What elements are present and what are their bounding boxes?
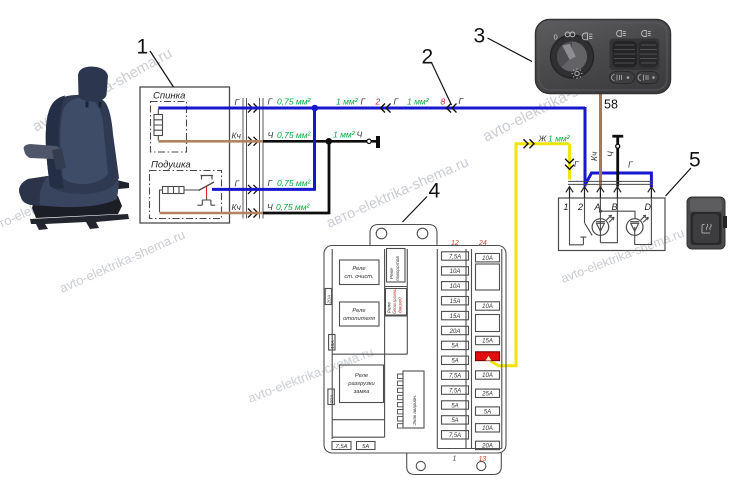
- svg-text:15А: 15А: [450, 299, 461, 305]
- svg-text:0,75 мм²: 0,75 мм²: [276, 202, 311, 212]
- svg-text:Кч: Кч: [589, 151, 599, 161]
- svg-text:Знак аварийн.: Знак аварийн.: [411, 395, 417, 425]
- svg-text:5А: 5А: [451, 359, 458, 365]
- svg-text:15А: 15А: [330, 340, 336, 349]
- svg-text:15А: 15А: [450, 314, 461, 320]
- svg-text:5А: 5А: [362, 444, 369, 450]
- svg-text:Ч: Ч: [268, 130, 274, 140]
- svg-text:0: 0: [554, 33, 558, 42]
- svg-text:0,75 мм²: 0,75 мм²: [277, 130, 312, 140]
- svg-text:10А: 10А: [482, 426, 493, 432]
- svg-text:Ч: Ч: [267, 202, 273, 212]
- svg-text:1 мм²: 1 мм²: [548, 133, 571, 143]
- svg-text:24: 24: [478, 240, 487, 247]
- svg-text:10А: 10А: [450, 284, 461, 290]
- svg-text:Реле: Реле: [355, 373, 369, 379]
- svg-text:10А: 10А: [482, 304, 493, 310]
- svg-text:10А: 10А: [329, 395, 335, 404]
- svg-text:Подушка: Подушка: [151, 160, 191, 171]
- svg-text:8: 8: [441, 97, 446, 107]
- svg-text:25А: 25А: [481, 392, 493, 398]
- svg-text:7,5А: 7,5А: [449, 374, 461, 380]
- svg-text:Реле: Реле: [389, 268, 395, 279]
- svg-text:20А: 20А: [481, 444, 493, 450]
- svg-text:ст. очист.: ст. очист.: [344, 274, 373, 280]
- svg-text:1 мм²: 1 мм²: [336, 97, 359, 107]
- svg-text:3: 3: [474, 25, 486, 48]
- svg-text:замка: замка: [353, 389, 371, 395]
- svg-text:Спинка: Спинка: [153, 91, 185, 102]
- svg-text:Реле: Реле: [352, 308, 366, 314]
- svg-text:2: 2: [577, 202, 583, 212]
- svg-text:Ч: Ч: [357, 130, 363, 140]
- svg-text:2: 2: [422, 46, 434, 69]
- svg-text:отопителя: отопителя: [343, 316, 375, 322]
- svg-text:блокировки: блокировки: [392, 288, 398, 314]
- svg-text:10А: 10А: [482, 373, 493, 379]
- svg-text:12: 12: [451, 240, 459, 247]
- svg-text:1 мм²: 1 мм²: [407, 96, 430, 106]
- svg-text:20А: 20А: [327, 295, 333, 305]
- svg-text:B: B: [612, 202, 618, 212]
- svg-text:7,5А: 7,5А: [449, 433, 461, 439]
- svg-text:0,75 мм²: 0,75 мм²: [277, 97, 312, 107]
- svg-text:7,5А: 7,5А: [449, 388, 461, 394]
- svg-text:7,5А: 7,5А: [449, 254, 461, 260]
- svg-text:Реле: Реле: [387, 302, 393, 313]
- svg-text:2: 2: [375, 97, 381, 107]
- svg-text:5А: 5А: [484, 409, 491, 415]
- svg-text:Кч: Кч: [232, 202, 242, 212]
- svg-text:1: 1: [564, 202, 569, 212]
- svg-text:Кч: Кч: [232, 130, 242, 140]
- svg-text:Ч: Ч: [606, 151, 616, 157]
- svg-text:5А: 5А: [451, 403, 458, 409]
- svg-text:5А: 5А: [451, 418, 458, 424]
- svg-text:10А: 10А: [482, 256, 493, 262]
- svg-text:поворотов: поворотов: [396, 256, 401, 281]
- svg-text:0,75 мм²: 0,75 мм²: [277, 178, 312, 188]
- svg-text:Ж: Ж: [538, 133, 548, 143]
- svg-text:4: 4: [429, 180, 441, 203]
- svg-text:58: 58: [604, 98, 618, 112]
- svg-text:дверей: дверей: [397, 297, 404, 313]
- svg-text:15А: 15А: [482, 339, 493, 345]
- svg-text:10А: 10А: [450, 269, 461, 275]
- svg-text:13: 13: [479, 456, 487, 463]
- svg-text:1 мм²: 1 мм²: [333, 130, 356, 140]
- svg-text:разгрузки: разгрузки: [347, 381, 375, 387]
- svg-text:7,5А: 7,5А: [336, 444, 348, 450]
- svg-text:1: 1: [453, 456, 457, 463]
- svg-text:5А: 5А: [451, 344, 458, 350]
- svg-text:Реле: Реле: [352, 266, 366, 272]
- svg-text:1: 1: [137, 36, 149, 59]
- svg-text:D: D: [645, 202, 652, 212]
- svg-text:20А: 20А: [449, 329, 461, 335]
